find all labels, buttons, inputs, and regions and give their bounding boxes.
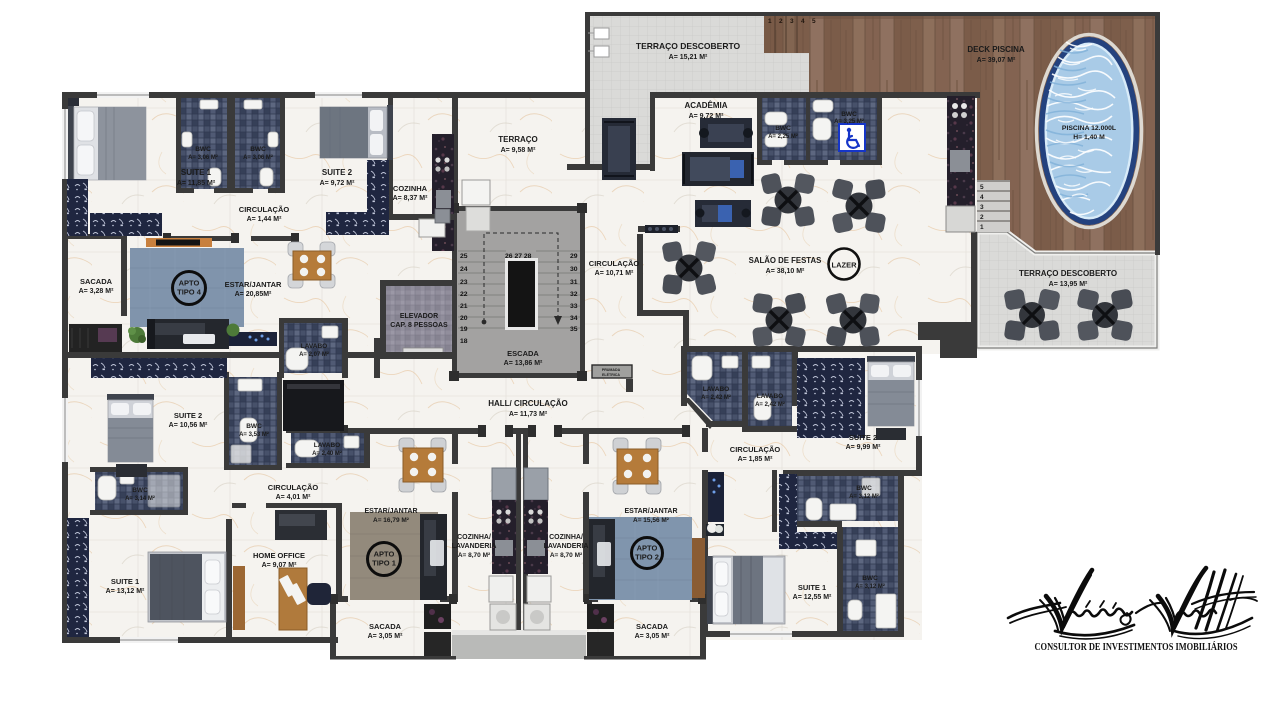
svg-text:H= 1,40 M: H= 1,40 M	[1073, 134, 1105, 141]
svg-text:APTO: APTO	[179, 279, 200, 288]
svg-text:A= 9,99 M²: A= 9,99 M²	[846, 444, 881, 451]
svg-text:A= 15,21 M²: A= 15,21 M²	[669, 54, 708, 61]
svg-text:CIRCULAÇÃO: CIRCULAÇÃO	[589, 259, 640, 268]
svg-text:COZINHA/: COZINHA/	[457, 534, 491, 541]
svg-text:23: 23	[460, 279, 468, 286]
svg-text:20: 20	[460, 315, 468, 322]
svg-text:A= 10,71 M²: A= 10,71 M²	[595, 270, 634, 277]
svg-text:A= 9,58 M²: A= 9,58 M²	[501, 147, 536, 154]
svg-text:BWC: BWC	[132, 487, 148, 494]
svg-text:CIRCULAÇÃO: CIRCULAÇÃO	[239, 205, 290, 214]
svg-text:5: 5	[812, 18, 816, 25]
svg-text:SALÃO DE FESTAS: SALÃO DE FESTAS	[749, 256, 822, 265]
svg-text:A= 9,72 M²: A= 9,72 M²	[689, 113, 724, 120]
svg-text:PISCINA 12.000L: PISCINA 12.000L	[1062, 125, 1116, 132]
svg-text:BWC: BWC	[195, 146, 211, 153]
svg-text:3: 3	[980, 204, 984, 211]
svg-text:LAVANDERIA: LAVANDERIA	[452, 543, 497, 550]
svg-text:ELÉTRICA: ELÉTRICA	[602, 372, 620, 377]
svg-text:22: 22	[460, 291, 468, 298]
svg-text:CAP. 8 PESSOAS: CAP. 8 PESSOAS	[390, 322, 448, 329]
svg-text:DECK PISCINA: DECK PISCINA	[967, 45, 1025, 54]
svg-text:SUITE 2: SUITE 2	[174, 411, 202, 420]
svg-text:A= 20,85M²: A= 20,85M²	[235, 291, 272, 298]
svg-text:HALL/ CIRCULAÇÃO: HALL/ CIRCULAÇÃO	[488, 399, 568, 408]
svg-text:TIPO 1: TIPO 1	[372, 559, 396, 568]
svg-text:30: 30	[570, 266, 578, 273]
svg-text:ESCADA: ESCADA	[507, 349, 539, 358]
svg-text:BWC: BWC	[250, 146, 266, 153]
svg-text:A= 3,53 M²: A= 3,53 M²	[239, 431, 269, 438]
svg-text:SUITE 1: SUITE 1	[181, 168, 212, 177]
svg-text:1: 1	[980, 224, 984, 231]
svg-text:PRUMADA: PRUMADA	[602, 368, 621, 372]
svg-text:HOME OFFICE: HOME OFFICE	[253, 551, 305, 560]
svg-text:COZINHA: COZINHA	[393, 184, 428, 193]
svg-text:LAVABO: LAVABO	[314, 442, 340, 449]
svg-text:A= 11,85 M²: A= 11,85 M²	[177, 180, 216, 187]
svg-text:APTO: APTO	[374, 550, 395, 559]
svg-text:26 27 28: 26 27 28	[505, 253, 532, 260]
svg-text:35: 35	[570, 326, 578, 333]
svg-text:A= 2,07 M²: A= 2,07 M²	[299, 351, 329, 358]
svg-text:ESTAR/JANTAR: ESTAR/JANTAR	[364, 508, 417, 515]
svg-text:A= 12,55 M²: A= 12,55 M²	[793, 594, 832, 601]
svg-text:34: 34	[570, 315, 578, 322]
svg-text:SACADA: SACADA	[80, 277, 113, 286]
svg-text:A= 3,05 M²: A= 3,05 M²	[368, 633, 403, 640]
svg-text:4: 4	[980, 194, 984, 201]
svg-text:ELEVADOR: ELEVADOR	[400, 313, 438, 320]
svg-text:3: 3	[790, 18, 794, 25]
svg-text:A= 10,56 M²: A= 10,56 M²	[169, 422, 208, 429]
svg-text:5: 5	[980, 184, 984, 191]
svg-text:A= 4,01 M²: A= 4,01 M²	[276, 494, 311, 501]
svg-text:COZINHA/: COZINHA/	[549, 534, 583, 541]
svg-text:A= 8,37 M²: A= 8,37 M²	[393, 195, 428, 202]
svg-text:A= 1,44 M²: A= 1,44 M²	[247, 216, 282, 223]
svg-text:A= 3,14 M²: A= 3,14 M²	[125, 495, 155, 502]
svg-text:32: 32	[570, 291, 578, 298]
svg-text:LAVABO: LAVABO	[703, 386, 729, 393]
svg-text:SACADA: SACADA	[636, 622, 669, 631]
svg-text:A= 3,12 M²: A= 3,12 M²	[855, 583, 885, 590]
svg-text:A= 8,70 M²: A= 8,70 M²	[550, 552, 583, 559]
svg-text:A= 3,06 M²: A= 3,06 M²	[243, 154, 273, 161]
svg-text:ESTAR/JANTAR: ESTAR/JANTAR	[225, 280, 282, 289]
svg-text:A= 13,86 M²: A= 13,86 M²	[504, 360, 543, 367]
svg-text:A= 1,85 M²: A= 1,85 M²	[738, 456, 773, 463]
svg-text:A= 3,25 M²: A= 3,25 M²	[834, 118, 864, 125]
svg-text:SUITE 2: SUITE 2	[322, 168, 353, 177]
svg-text:1: 1	[768, 18, 772, 25]
svg-text:2: 2	[980, 214, 984, 221]
svg-text:A= 11,73 M²: A= 11,73 M²	[509, 411, 548, 418]
svg-text:TERRAÇO DESCOBERTO: TERRAÇO DESCOBERTO	[636, 41, 741, 51]
svg-text:A= 9,07 M²: A= 9,07 M²	[262, 562, 297, 569]
svg-text:BWC: BWC	[246, 423, 262, 430]
svg-text:ESTAR/JANTAR: ESTAR/JANTAR	[624, 508, 677, 515]
svg-text:TIPO 4: TIPO 4	[177, 288, 202, 297]
svg-text:A= 3,12 M²: A= 3,12 M²	[849, 493, 879, 500]
svg-text:BWC: BWC	[775, 125, 791, 132]
svg-text:A= 2,42 M²: A= 2,42 M²	[701, 394, 731, 401]
svg-text:33: 33	[570, 303, 578, 310]
svg-text:24: 24	[460, 266, 468, 273]
svg-text:TERRAÇO DESCOBERTO: TERRAÇO DESCOBERTO	[1019, 269, 1117, 278]
svg-text:CONSULTOR DE INVESTIMENTOS IMO: CONSULTOR DE INVESTIMENTOS IMOBILIÁRIOS	[1035, 641, 1238, 653]
svg-text:BWC: BWC	[856, 485, 872, 492]
svg-text:TIPO 2: TIPO 2	[635, 553, 659, 562]
svg-text:TERRAÇO: TERRAÇO	[498, 135, 538, 144]
svg-text:A= 3,28 M²: A= 3,28 M²	[79, 288, 114, 295]
svg-text:SACADA: SACADA	[369, 622, 402, 631]
svg-text:A= 39,07 M²: A= 39,07 M²	[977, 57, 1016, 64]
svg-text:LAZER: LAZER	[832, 261, 858, 270]
svg-text:29: 29	[570, 253, 578, 260]
svg-text:LAVABO: LAVABO	[757, 393, 783, 400]
svg-text:A= 2,40 M²: A= 2,40 M²	[312, 450, 342, 457]
svg-text:BWC: BWC	[841, 111, 857, 118]
svg-text:A= 16,79 M²: A= 16,79 M²	[373, 517, 410, 524]
svg-text:A= 38,10 M²: A= 38,10 M²	[766, 268, 805, 275]
svg-text:A= 13,95 M²: A= 13,95 M²	[1049, 281, 1088, 288]
svg-text:2: 2	[779, 18, 783, 25]
svg-text:BWC: BWC	[862, 575, 878, 582]
svg-text:SUITE 2: SUITE 2	[849, 433, 877, 442]
svg-text:21: 21	[460, 303, 468, 310]
svg-text:CIRCULAÇÃO: CIRCULAÇÃO	[268, 483, 319, 492]
svg-text:A= 15,56 M²: A= 15,56 M²	[633, 517, 670, 524]
svg-text:ACADÊMIA: ACADÊMIA	[684, 101, 727, 110]
svg-text:LAVANDERIA: LAVANDERIA	[544, 543, 589, 550]
svg-text:A= 9,72 M²: A= 9,72 M²	[320, 180, 355, 187]
svg-text:18: 18	[460, 338, 468, 345]
svg-text:A= 3,06 M²: A= 3,06 M²	[188, 154, 218, 161]
svg-text:19: 19	[460, 326, 468, 333]
svg-text:LAVABO: LAVABO	[301, 343, 327, 350]
svg-text:A= 2,42 M²: A= 2,42 M²	[755, 401, 785, 408]
svg-text:25: 25	[460, 253, 468, 260]
svg-text:CIRCULAÇÃO: CIRCULAÇÃO	[730, 445, 781, 454]
svg-text:4: 4	[801, 18, 805, 25]
svg-text:APTO: APTO	[637, 544, 658, 553]
svg-text:A= 13,12 M²: A= 13,12 M²	[106, 588, 145, 595]
svg-text:A= 8,70 M²: A= 8,70 M²	[458, 552, 491, 559]
svg-text:SUITE 1: SUITE 1	[798, 583, 826, 592]
svg-text:A= 2,25 M²: A= 2,25 M²	[768, 133, 798, 140]
svg-text:A= 3,05 M²: A= 3,05 M²	[635, 633, 670, 640]
svg-text:31: 31	[570, 279, 578, 286]
svg-text:SUITE 1: SUITE 1	[111, 577, 139, 586]
